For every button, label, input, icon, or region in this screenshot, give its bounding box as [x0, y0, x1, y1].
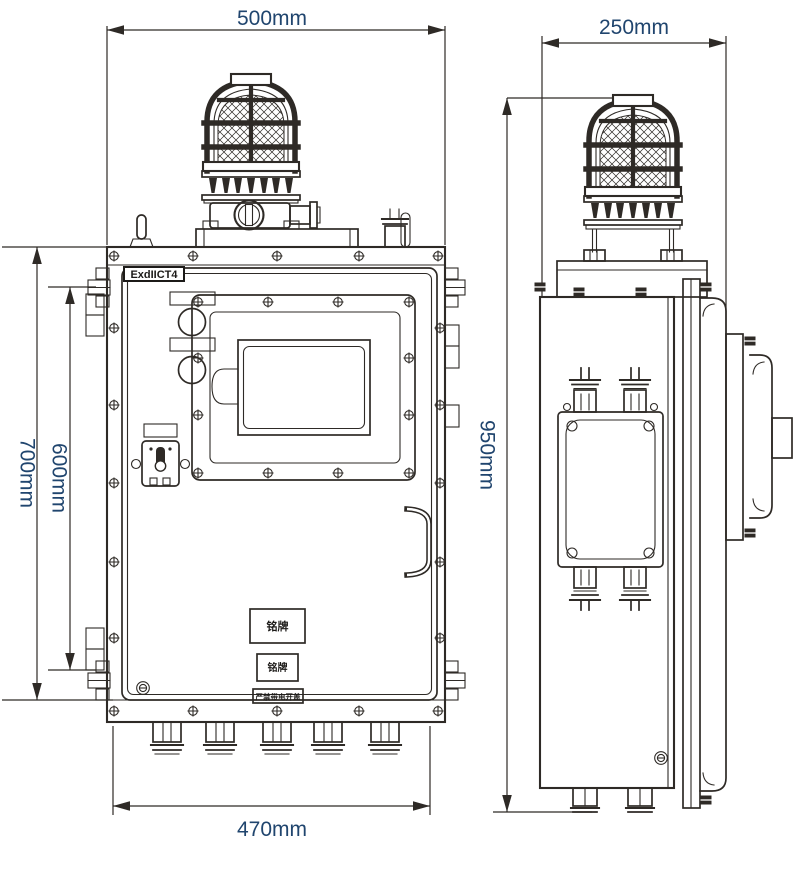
dim-label-500mm: 500mm [237, 7, 307, 30]
dim-label-600mm: 600mm [47, 443, 70, 513]
dim-label-950mm: 950mm [475, 420, 498, 490]
dim-label-470mm: 470mm [237, 818, 307, 841]
dim-label-250mm: 250mm [599, 16, 669, 39]
technical-drawing: 500mm 700mm 600mm 470mm [0, 0, 800, 876]
nameplate-upper-text: 铭牌 [267, 619, 289, 633]
nameplate-lower-text: 铭牌 [268, 661, 288, 674]
drawing-canvas: 500mm 700mm 600mm 470mm [0, 0, 800, 876]
dim-label-700mm: 700mm [15, 438, 38, 508]
warning-plate-text: 严禁带电开盖 [255, 692, 301, 702]
ex-marking-label: ExdIICT4 [130, 269, 178, 281]
